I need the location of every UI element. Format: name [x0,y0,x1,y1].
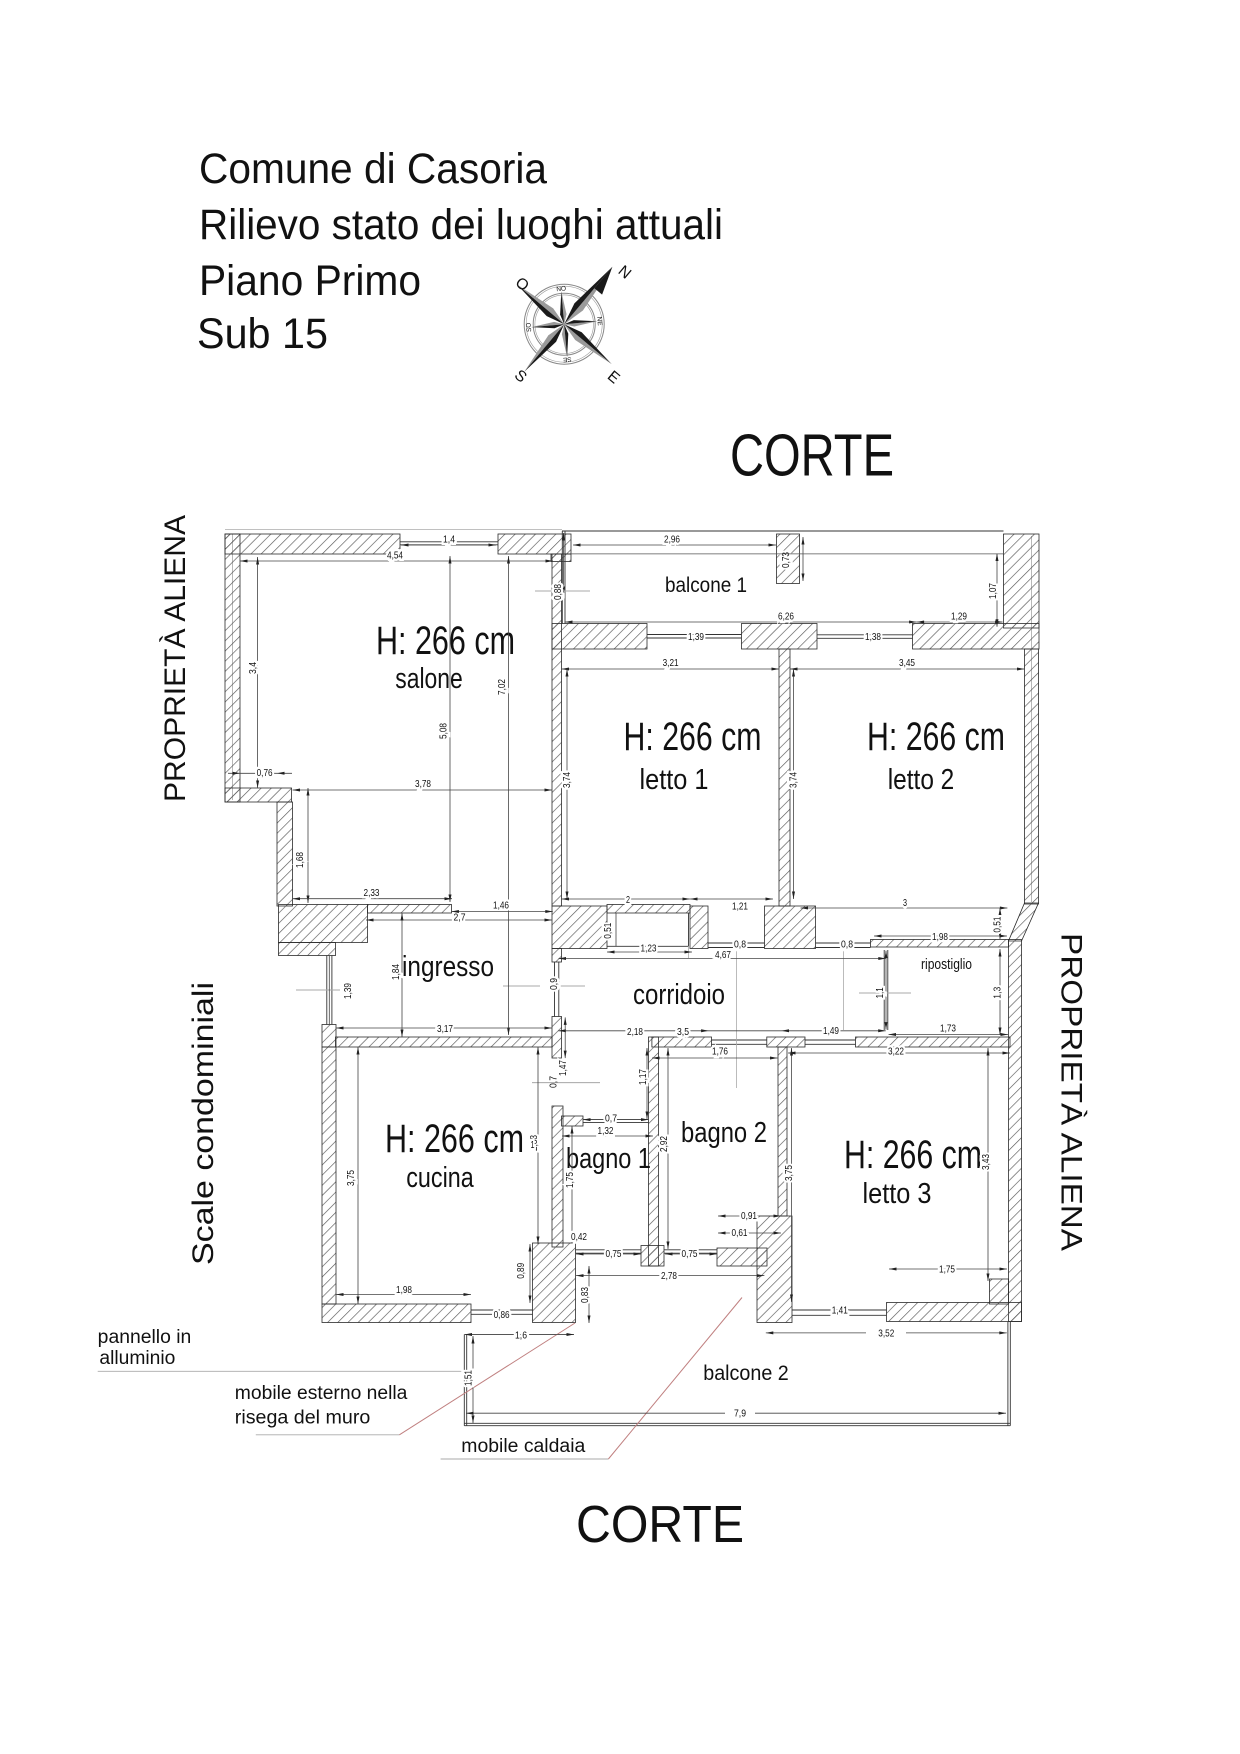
svg-text:0,51: 0,51 [992,916,1004,932]
svg-text:0,8: 0,8 [841,939,853,951]
svg-text:0,88: 0,88 [552,584,564,600]
svg-text:3,4: 3,4 [247,662,259,674]
svg-text:1,3: 1,3 [992,987,1004,999]
svg-text:letto 1: letto 1 [640,764,709,796]
svg-text:Sub 15: Sub 15 [197,310,328,358]
svg-text:3,75: 3,75 [783,1165,795,1181]
svg-text:1,32: 1,32 [598,1125,614,1137]
svg-text:3,5: 3,5 [677,1026,689,1038]
svg-text:3,17: 3,17 [437,1023,453,1035]
svg-text:1,4: 1,4 [443,534,455,546]
svg-text:alluminio: alluminio [99,1348,175,1369]
svg-text:1,23: 1,23 [641,943,657,955]
svg-text:2,18: 2,18 [627,1026,643,1038]
svg-text:1,21: 1,21 [732,901,748,913]
svg-text:0,42: 0,42 [571,1231,587,1243]
svg-text:0,7: 0,7 [548,1076,560,1088]
svg-text:2,96: 2,96 [664,534,680,546]
svg-text:corridoio: corridoio [633,979,725,1011]
svg-text:H: 266 cm: H: 266 cm [867,715,1005,759]
svg-text:1,39: 1,39 [342,983,354,999]
svg-text:1,39: 1,39 [688,631,704,643]
svg-text:NO: NO [556,285,566,293]
svg-text:3: 3 [903,897,907,909]
svg-text:1,75: 1,75 [939,1264,955,1276]
svg-text:ripostiglio: ripostiglio [921,956,972,973]
svg-text:PROPRIETÀ ALIENA: PROPRIETÀ ALIENA [1055,933,1088,1251]
svg-text:1,07: 1,07 [987,583,999,599]
svg-text:3,78: 3,78 [415,778,431,790]
svg-text:0,76: 0,76 [257,767,273,779]
svg-text:H: 266 cm: H: 266 cm [385,1117,524,1161]
svg-text:2,7: 2,7 [454,912,466,924]
svg-text:CORTE: CORTE [730,423,894,489]
svg-text:2,33: 2,33 [364,887,380,899]
svg-text:3,21: 3,21 [663,657,679,669]
svg-text:risega del muro: risega del muro [235,1408,370,1429]
svg-text:salone: salone [395,663,463,695]
svg-text:0,91: 0,91 [741,1210,757,1222]
svg-text:1,84: 1,84 [390,964,402,980]
svg-text:1,47: 1,47 [557,1060,569,1076]
svg-text:0,9: 0,9 [548,978,560,990]
svg-text:0,75: 0,75 [682,1248,698,1260]
svg-text:1,75: 1,75 [564,1172,576,1188]
svg-text:ingresso: ingresso [402,951,494,983]
svg-text:3,22: 3,22 [888,1046,904,1058]
svg-text:0,75: 0,75 [606,1248,622,1260]
svg-text:2: 2 [626,894,630,906]
svg-text:NE: NE [595,316,603,326]
svg-text:3,74: 3,74 [561,772,573,788]
svg-text:1,38: 1,38 [865,631,881,643]
svg-text:1,51: 1,51 [463,1370,475,1386]
svg-text:Rilievo stato dei luoghi attua: Rilievo stato dei luoghi attuali [199,201,723,249]
svg-text:3,74: 3,74 [788,772,800,788]
svg-text:1,6: 1,6 [515,1330,527,1342]
svg-text:SO: SO [525,322,533,332]
svg-text:0,8: 0,8 [734,939,746,951]
svg-text:4,54: 4,54 [387,550,403,562]
svg-text:1,98: 1,98 [396,1284,412,1296]
svg-text:2,92: 2,92 [658,1136,670,1152]
svg-text:bagno 1: bagno 1 [566,1143,651,1175]
svg-text:0,89: 0,89 [515,1263,527,1279]
svg-text:0,7: 0,7 [605,1113,617,1125]
svg-text:7,9: 7,9 [734,1408,746,1420]
svg-text:1: 1 [531,1139,535,1151]
svg-text:1,29: 1,29 [951,611,967,623]
svg-text:4,67: 4,67 [715,949,731,961]
svg-text:bagno 2: bagno 2 [681,1117,767,1149]
svg-text:PROPRIETÀ ALIENA: PROPRIETÀ ALIENA [159,515,192,802]
svg-text:letto 2: letto 2 [888,764,955,796]
svg-text:3,45: 3,45 [899,657,915,669]
svg-text:0,61: 0,61 [732,1227,748,1239]
svg-text:CORTE: CORTE [576,1496,744,1554]
svg-text:H: 266 cm: H: 266 cm [624,715,762,759]
svg-text:1,46: 1,46 [493,900,509,912]
svg-text:0,51: 0,51 [602,923,614,939]
svg-text:1,73: 1,73 [940,1023,956,1035]
svg-text:0,83: 0,83 [579,1287,591,1303]
svg-text:1,49: 1,49 [823,1025,839,1037]
svg-text:3,75: 3,75 [345,1170,357,1186]
svg-text:1,1: 1,1 [874,987,886,998]
svg-text:2,78: 2,78 [661,1270,677,1282]
svg-text:mobile caldaia: mobile caldaia [461,1436,585,1457]
svg-text:mobile esterno nella: mobile esterno nella [235,1383,408,1404]
svg-text:H: 266 cm: H: 266 cm [376,619,515,663]
svg-text:3,43: 3,43 [980,1154,992,1170]
svg-text:7,02: 7,02 [496,679,508,695]
svg-text:Scale condominiali: Scale condominiali [187,982,220,1265]
svg-text:Comune di Casoria: Comune di Casoria [199,145,547,193]
svg-text:H: 266 cm: H: 266 cm [844,1133,982,1177]
svg-text:letto 3: letto 3 [863,1178,932,1210]
svg-text:SE: SE [562,355,572,363]
svg-text:Piano Primo: Piano Primo [199,257,421,305]
svg-text:1,17: 1,17 [637,1069,649,1085]
svg-text:1,76: 1,76 [712,1046,728,1058]
svg-text:pannello in: pannello in [98,1327,192,1348]
svg-text:5,08: 5,08 [438,723,450,739]
svg-text:cucina: cucina [406,1162,474,1194]
svg-text:6,26: 6,26 [778,611,794,623]
svg-text:balcone 2: balcone 2 [703,1362,789,1385]
svg-text:balcone 1: balcone 1 [665,574,747,597]
svg-text:0,86: 0,86 [494,1309,510,1321]
svg-text:1,68: 1,68 [294,852,306,868]
svg-text:3,52: 3,52 [878,1328,894,1340]
svg-text:1,41: 1,41 [832,1305,848,1317]
svg-text:1,98: 1,98 [932,931,948,943]
